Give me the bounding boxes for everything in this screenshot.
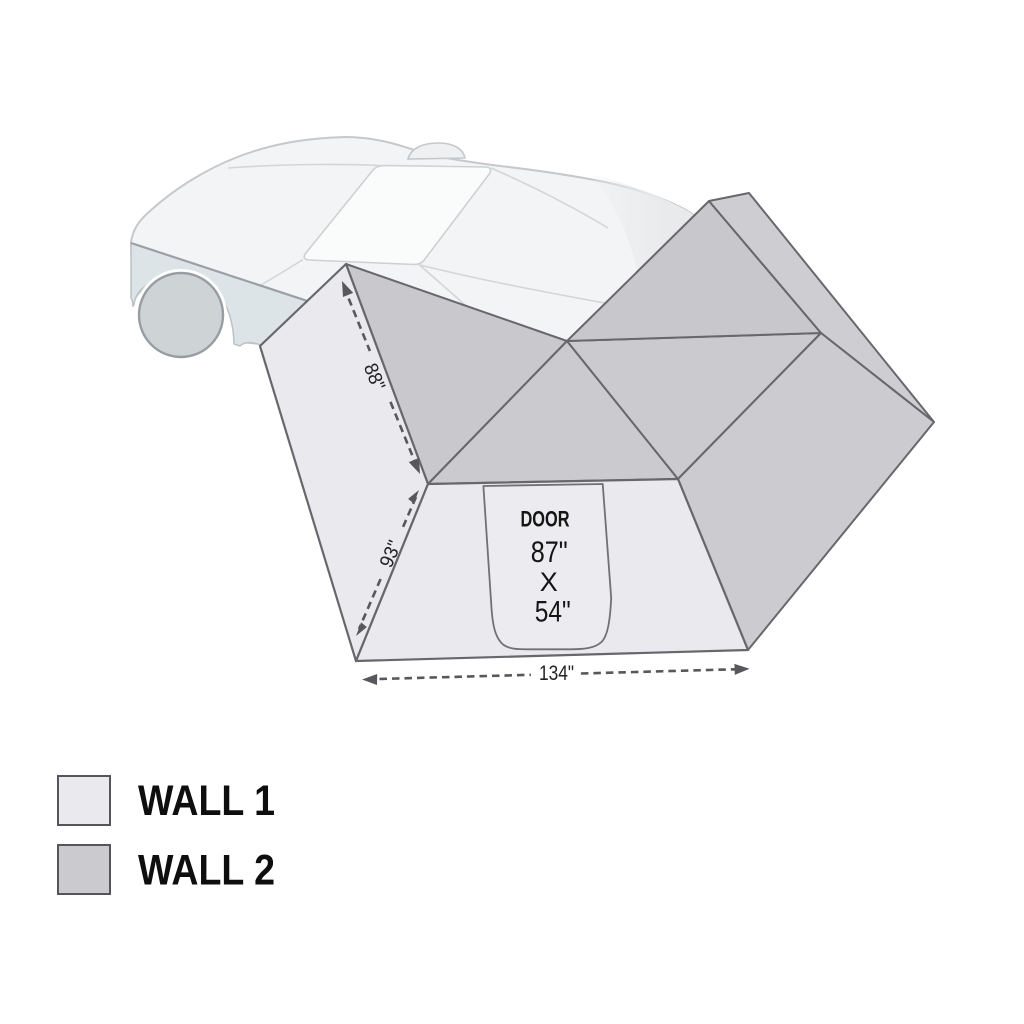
- svg-text:134": 134": [539, 662, 574, 685]
- svg-text:87": 87": [531, 536, 568, 569]
- svg-text:WALL 2: WALL 2: [138, 848, 275, 895]
- svg-text:WALL 1: WALL 1: [138, 778, 275, 825]
- svg-text:X: X: [540, 567, 558, 597]
- svg-text:DOOR: DOOR: [521, 507, 570, 532]
- svg-text:54": 54": [535, 596, 571, 629]
